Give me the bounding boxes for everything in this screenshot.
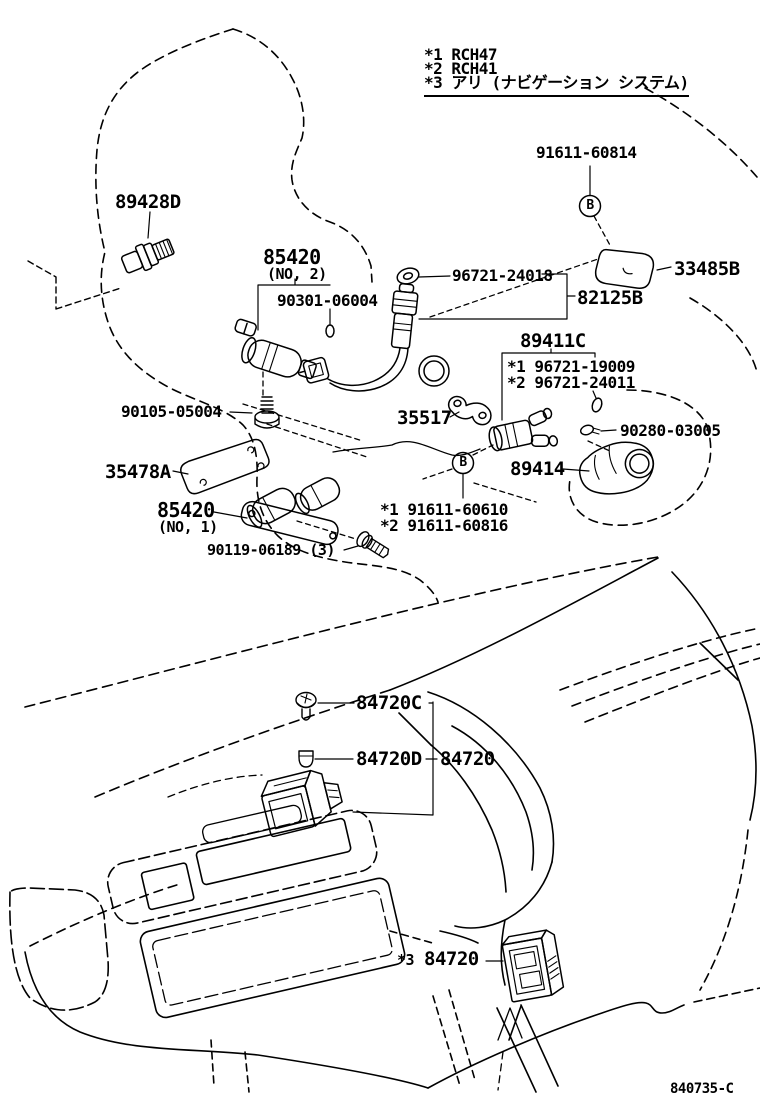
callout-90119-06189: 90119-06189 (3) (207, 543, 335, 559)
callout-82125b: 82125B (577, 289, 643, 309)
callout-84720-bottom: 84720 (424, 950, 479, 970)
legend-note-3: *3 アリ (ナビゲーション システム) (424, 75, 689, 97)
callout-85420-no2-sub: (NO, 2) (267, 267, 327, 283)
callout-89414: 89414 (510, 460, 565, 480)
part-90280-screw (579, 424, 616, 437)
instrument-hood-curves (399, 692, 554, 985)
callout-84720c: 84720C (356, 694, 422, 714)
callout-84720: 84720 (440, 750, 495, 770)
part-89428d-switch (119, 212, 176, 277)
part-84720-hazard-switch (168, 765, 346, 837)
callout-91611-variant2: *2 91611-60816 (380, 518, 508, 535)
part-35478a-plate (173, 437, 273, 495)
bolt-marker-b1-letter: B (582, 199, 598, 213)
left-hatch-mark (28, 261, 121, 309)
callout-33485b: 33485B (674, 260, 740, 280)
callout-85420-no1-sub: (NO, 1) (158, 520, 218, 536)
callout-35517: 35517 (397, 409, 452, 429)
dashboard-outline (25, 557, 760, 990)
cluster-opening (138, 876, 406, 1019)
callout-89411c: 89411C (520, 332, 586, 352)
part-35517-clamp (447, 390, 493, 431)
diagram-line-art (0, 0, 760, 1112)
callout-91611-60814: 91611-60814 (536, 145, 636, 162)
callout-90105-05004: 90105-05004 (121, 404, 221, 421)
callout-89411c-variant2: *2 96721-24011 (507, 375, 635, 392)
callout-35478a: 35478A (105, 463, 171, 483)
callout-90280-03005: 90280-03005 (620, 423, 720, 440)
callout-84720d: 84720D (356, 750, 422, 770)
callout-84720-note3-prefix: *3 (397, 953, 414, 969)
part-89414-sensor (563, 435, 659, 503)
part-84720c-screw (296, 693, 354, 721)
parts-diagram-page: *1 RCH47 *2 RCH41 *3 アリ (ナビゲーション システム) 8… (0, 0, 760, 1112)
drawing-number: 840735-C (670, 1082, 733, 1097)
callout-89428d: 89428D (115, 193, 181, 213)
callout-96721-24018: 96721-24018 (452, 268, 552, 285)
lower-dash-curves (25, 884, 760, 1092)
part-90105-bolt (230, 397, 279, 428)
left-speaker-grille (10, 888, 108, 1010)
bolt-marker-b2-letter: B (455, 456, 471, 470)
callout-90301-06004: 90301-06004 (277, 293, 377, 310)
